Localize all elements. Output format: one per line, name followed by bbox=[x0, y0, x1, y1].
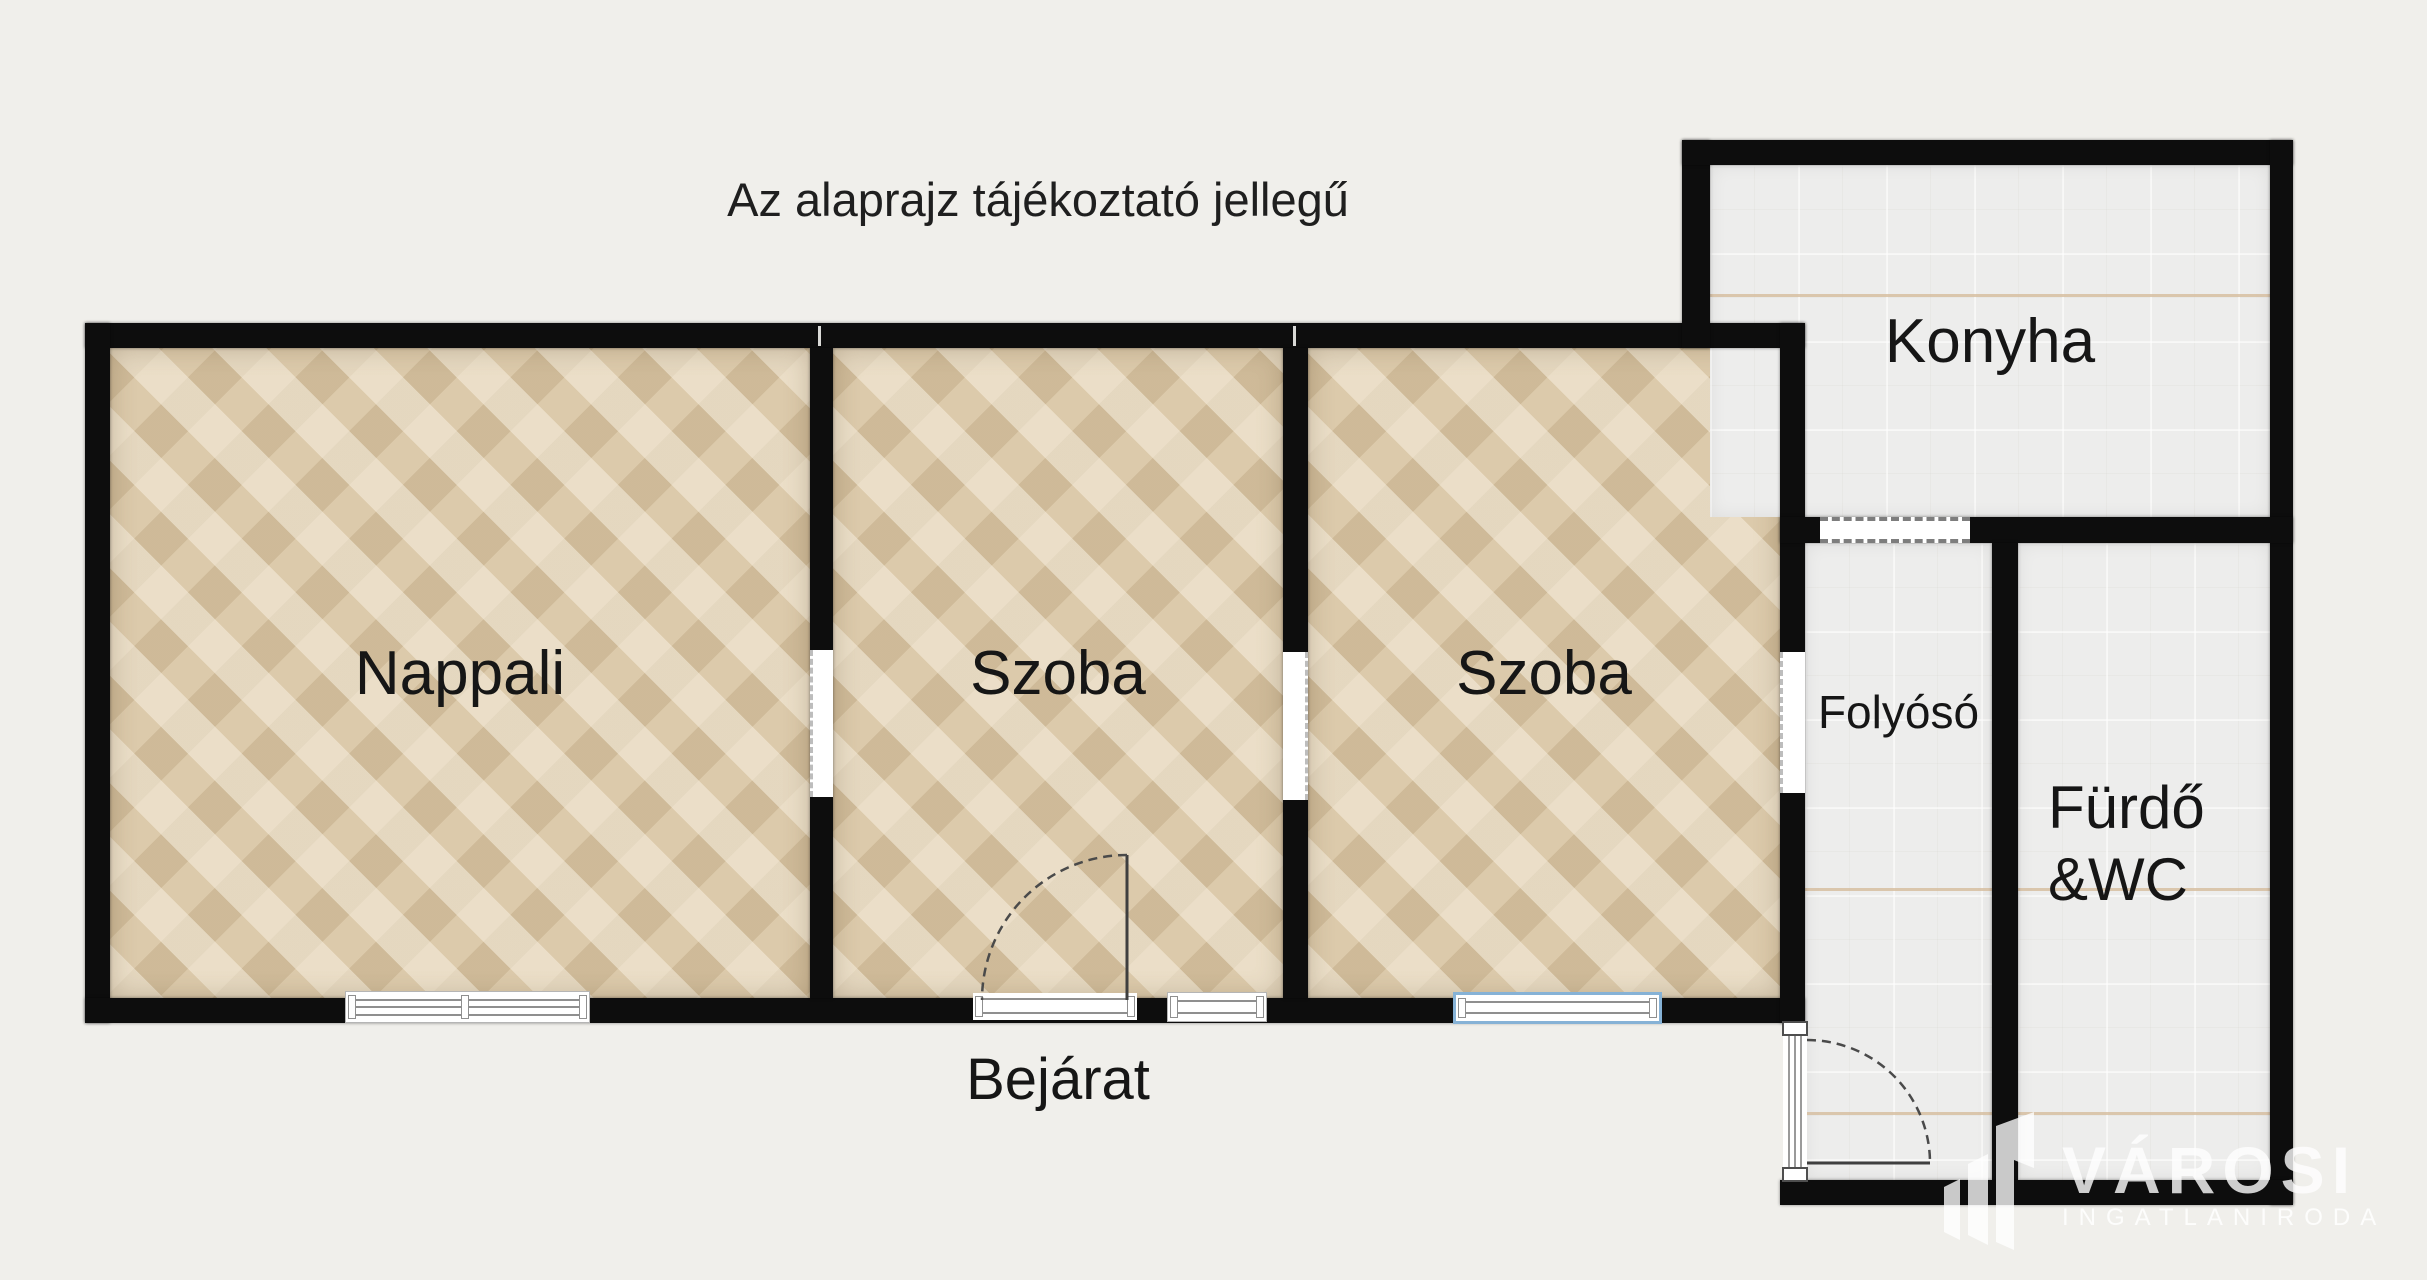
door-threshold-line bbox=[976, 998, 1134, 1000]
room-label-konyha: Konyha bbox=[1710, 165, 2270, 517]
building-bar-medium bbox=[1968, 1154, 1988, 1245]
wall-konyha-left bbox=[1682, 140, 1710, 348]
door-frame-cap bbox=[1782, 1021, 1808, 1036]
building-bar-tall bbox=[1996, 1112, 2034, 1250]
logo-subtitle: INGATLANIRODA bbox=[2062, 1204, 2386, 1232]
wall-right-outer bbox=[2270, 140, 2293, 1205]
window-cap bbox=[1649, 998, 1657, 1018]
door-opening-konyha bbox=[1820, 517, 1970, 543]
window-cap bbox=[348, 995, 356, 1019]
room-label-szoba1: Szoba bbox=[833, 348, 1283, 998]
window-frame-line bbox=[1171, 1012, 1263, 1014]
disclaimer-note: Az alaprajz tájékoztató jellegű bbox=[688, 172, 1388, 227]
door-opening-szoba-szoba bbox=[1283, 652, 1308, 800]
door-opening-nappali-szoba bbox=[810, 650, 833, 797]
logo-brand: VÁROSI bbox=[2062, 1132, 2357, 1208]
room-label-furdo-line1: Fürdő bbox=[2048, 774, 2205, 841]
window-frame-line bbox=[1171, 1000, 1263, 1002]
entrance-door-frame bbox=[1783, 1023, 1807, 1180]
window-cap bbox=[579, 995, 587, 1019]
window-cap bbox=[1170, 996, 1178, 1018]
window-frame-line bbox=[1459, 1001, 1656, 1003]
folyoso-floor bbox=[1805, 543, 1992, 1180]
wall-left bbox=[85, 323, 110, 1023]
wall-top-seam-1 bbox=[818, 326, 821, 346]
door-frame-cap bbox=[1782, 1167, 1808, 1182]
room-label-furdo: Fürdő &WC bbox=[2048, 772, 2205, 916]
room-label-furdo-line2: &WC bbox=[2048, 846, 2188, 913]
wall-top bbox=[85, 323, 1805, 348]
building-bar-small bbox=[1944, 1179, 1960, 1240]
buildings-icon bbox=[1942, 1112, 2044, 1250]
door-jamb bbox=[975, 996, 983, 1017]
window-cap bbox=[1256, 996, 1264, 1018]
floorplan-canvas: Az alaprajz tájékoztató jellegű bbox=[0, 0, 2427, 1280]
window-frame-line bbox=[1459, 1012, 1656, 1014]
door-opening-szoba-folyoso bbox=[1780, 652, 1805, 793]
window-cap bbox=[1458, 998, 1466, 1018]
entrance-label: Bejárat bbox=[908, 1048, 1208, 1110]
wall-konyha-top bbox=[1682, 140, 2293, 165]
room-label-nappali: Nappali bbox=[110, 348, 810, 998]
room-label-folyoso: Folyósó bbox=[1805, 684, 1992, 740]
wall-top-seam-2 bbox=[1293, 326, 1296, 346]
window-mullion bbox=[461, 995, 469, 1019]
door-threshold-line bbox=[976, 1012, 1134, 1014]
door-jamb bbox=[1127, 996, 1135, 1017]
wall-folyoso-furdo bbox=[1992, 543, 2018, 1180]
